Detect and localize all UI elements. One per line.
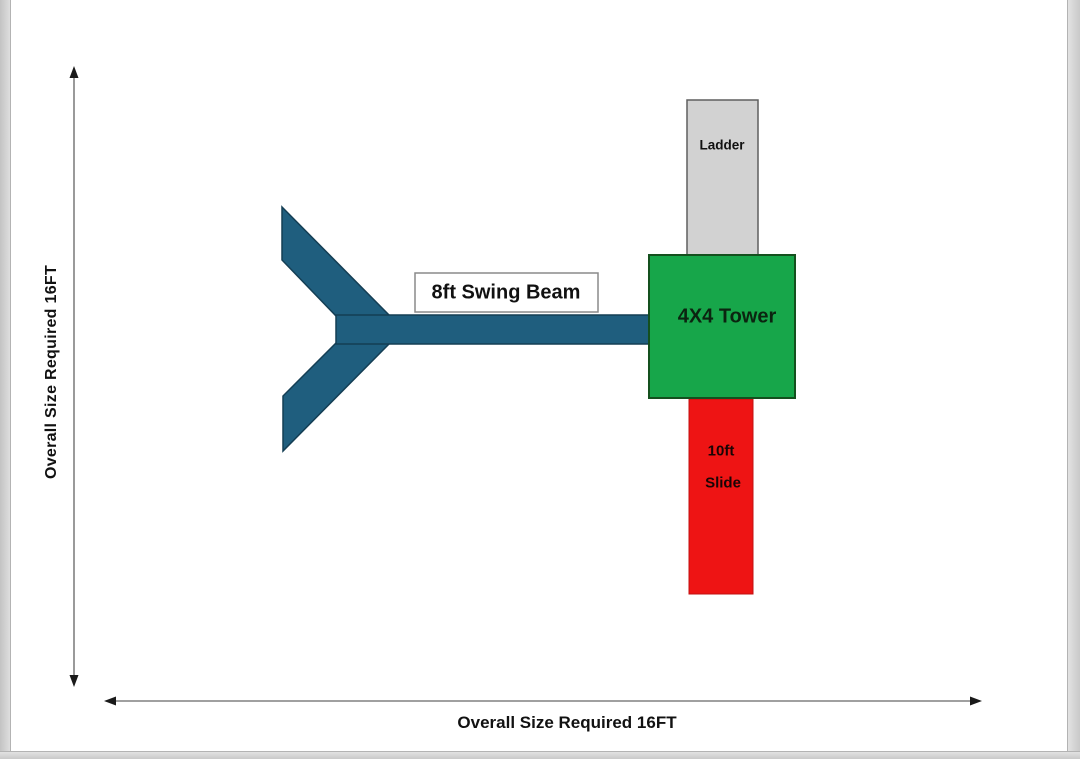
ladder-shape <box>687 100 758 255</box>
swing-beam-shape <box>282 207 649 451</box>
horizontal-dimension-arrow <box>104 697 982 706</box>
page-edge-left <box>0 0 11 759</box>
diagram-canvas: Overall Size Required 16FT Overall Size … <box>0 0 1080 759</box>
arrowhead-right-icon <box>970 697 982 706</box>
swing-leg-upper <box>282 207 390 316</box>
swing-beam-label: 8ft Swing Beam <box>432 282 581 305</box>
page-edge-bottom <box>0 751 1080 759</box>
layout-diagram-svg <box>0 0 1080 759</box>
page-edge-right <box>1067 0 1080 759</box>
vertical-dimension-arrow <box>70 66 79 687</box>
swing-beam-bar <box>336 315 649 344</box>
horizontal-dimension-label: Overall Size Required 16FT <box>457 713 676 733</box>
tower-label: 4X4 Tower <box>678 306 777 329</box>
vertical-dimension-label: Overall Size Required 16FT <box>43 265 61 479</box>
slide-label-line2: Slide <box>705 475 741 492</box>
arrowhead-down-icon <box>70 675 79 687</box>
slide-shape <box>689 399 753 594</box>
ladder-label: Ladder <box>699 138 744 153</box>
arrowhead-up-icon <box>70 66 79 78</box>
swing-leg-lower <box>283 343 390 451</box>
arrowhead-left-icon <box>104 697 116 706</box>
slide-label-line1: 10ft <box>708 443 735 460</box>
